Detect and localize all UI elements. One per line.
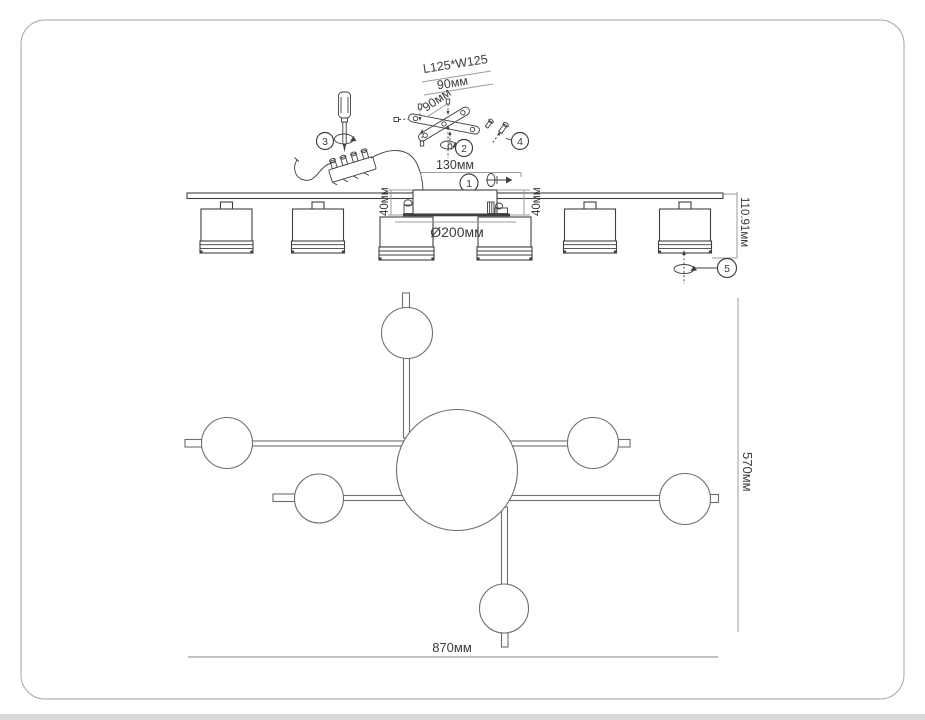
shade-5 (564, 202, 617, 253)
shade-3 (379, 217, 434, 260)
plan-lamp-bottom (480, 584, 529, 633)
page-border (21, 20, 904, 699)
mounting-crossbar-icon (408, 106, 480, 143)
plan-center-body (397, 410, 518, 531)
page-bottom-band (0, 714, 925, 720)
stub-left (185, 440, 202, 448)
terminal-block-icon (326, 147, 378, 186)
shade-6 (659, 202, 712, 253)
step-5-number: 5 (724, 263, 730, 275)
step-4-number: 4 (517, 136, 523, 148)
rotate-icon-step3 (335, 134, 357, 144)
plan-lamp-top (382, 308, 433, 359)
drop-left-label: 40мм (379, 187, 391, 216)
plan-lamp-upper-right (568, 418, 619, 469)
rotate-icon-step5 (674, 250, 697, 284)
shade-2 (292, 202, 345, 253)
shade-4 (477, 217, 532, 260)
slide-icon-step1 (486, 174, 513, 187)
plan-lamp-right (660, 474, 711, 525)
step-2-number: 2 (461, 143, 467, 155)
plan-lamp-left (202, 418, 253, 469)
anchor-screw-icon (490, 121, 510, 145)
step-4-leader (506, 139, 512, 141)
step-1-number: 1 (466, 178, 472, 190)
plan-length-label: 870мм (432, 640, 472, 655)
anchor-screw-small (484, 118, 494, 128)
stub-right (710, 495, 719, 503)
stub-lower-left (273, 494, 295, 502)
stub-upper-right (618, 440, 630, 448)
plan-lamp-lower-left (295, 474, 344, 523)
wire-right (371, 151, 423, 190)
canopy-box (413, 190, 497, 214)
plan-view: 570мм 870мм (185, 293, 755, 657)
canopy-width-label: 130мм (436, 158, 474, 172)
installation-detail: 3 (295, 52, 529, 190)
drop-right-label: 40мм (531, 187, 543, 216)
stub-top (403, 293, 410, 308)
shade-1 (200, 202, 253, 253)
fixture-height-dim (712, 192, 737, 258)
chandelier-installation-diagram: 3 (0, 0, 925, 720)
terminal-screws (329, 148, 369, 169)
side-elevation: 130мм 1 (187, 158, 750, 284)
stub-bottom (502, 633, 509, 647)
fixture-height-label: 110.91мм (738, 197, 750, 247)
shade-diameter-label: Ø200мм (430, 224, 484, 240)
plan-depth-label: 570мм (740, 452, 755, 492)
technical-drawing-page: 3 (0, 0, 925, 720)
step-3-number: 3 (322, 136, 328, 148)
canopy-clamp-left (404, 200, 413, 214)
